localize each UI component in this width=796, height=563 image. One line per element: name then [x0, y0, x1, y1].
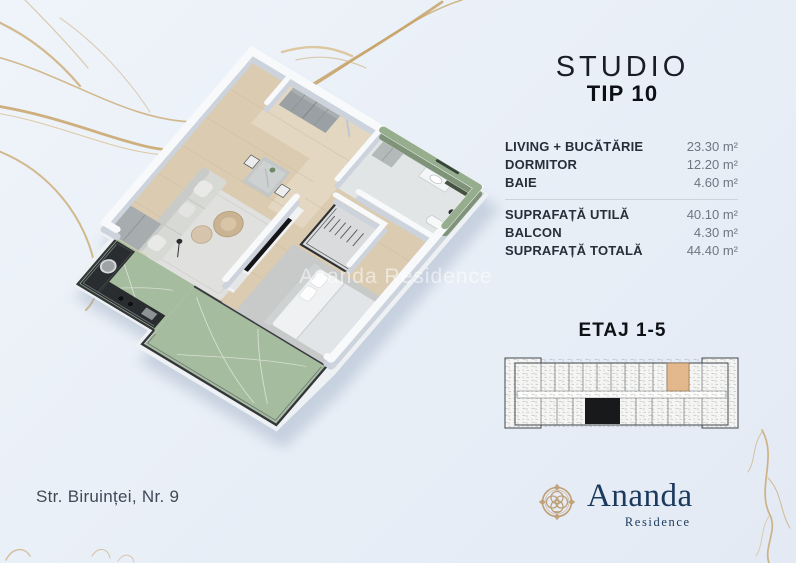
- brochure-page: Ananda Residence STUDIO TIP 10 LIVING + …: [0, 0, 796, 563]
- brand-name: Ananda: [587, 481, 693, 512]
- watermark: Ananda Residence: [299, 265, 492, 288]
- brand-emblem-icon: [536, 481, 578, 523]
- building-key-plan: [503, 351, 740, 431]
- area-table: LIVING + BUCĂTĂRIE 23.30 m² DORMITOR 12.…: [505, 138, 738, 260]
- unit-title-block: STUDIO TIP 10: [505, 52, 740, 107]
- unit-type-title: STUDIO: [505, 52, 740, 82]
- unit-tip-label: TIP 10: [505, 82, 740, 106]
- area-row: BAIE 4.60 m²: [505, 174, 738, 192]
- area-value: 4.60 m²: [694, 174, 738, 192]
- area-total-row: SUPRAFAȚĂ UTILĂ 40.10 m²: [505, 206, 738, 224]
- area-label: BALCON: [505, 224, 562, 242]
- area-row: DORMITOR 12.20 m²: [505, 156, 738, 174]
- area-label: SUPRAFAȚĂ UTILĂ: [505, 206, 629, 224]
- plan-detail-texture: [505, 358, 738, 428]
- area-value: 12.20 m²: [687, 156, 738, 174]
- area-label: SUPRAFAȚĂ TOTALĂ: [505, 242, 643, 260]
- area-total-row: SUPRAFAȚĂ TOTALĂ 44.40 m²: [505, 242, 738, 260]
- area-total-row: BALCON 4.30 m²: [505, 224, 738, 242]
- area-label: BAIE: [505, 174, 537, 192]
- floor-range-label: ETAJ 1-5: [505, 320, 740, 342]
- area-value: 23.30 m²: [687, 138, 738, 156]
- brand-logo: Ananda Residence: [536, 481, 693, 530]
- street-address: Str. Biruinței, Nr. 9: [36, 487, 179, 507]
- area-value: 44.40 m²: [687, 242, 738, 260]
- table-divider: [505, 199, 738, 200]
- area-value: 40.10 m²: [687, 206, 738, 224]
- elevator-core: [585, 398, 620, 424]
- highlighted-unit: [667, 363, 689, 391]
- area-label: LIVING + BUCĂTĂRIE: [505, 138, 643, 156]
- area-label: DORMITOR: [505, 156, 577, 174]
- area-value: 4.30 m²: [694, 224, 738, 242]
- area-row: LIVING + BUCĂTĂRIE 23.30 m²: [505, 138, 738, 156]
- apartment-3d-plan: Ananda Residence: [44, 50, 500, 453]
- brand-subtitle: Residence: [625, 515, 691, 530]
